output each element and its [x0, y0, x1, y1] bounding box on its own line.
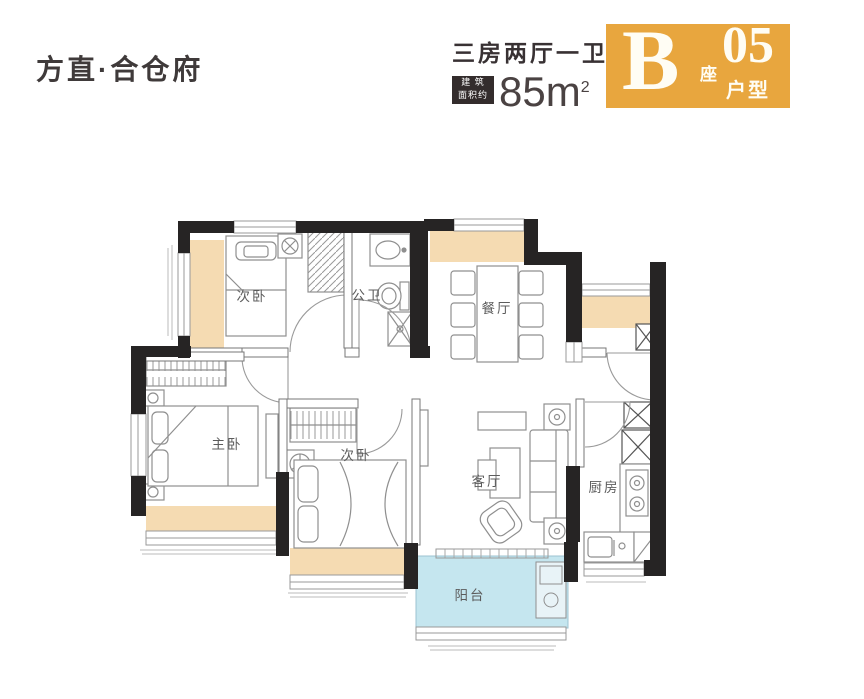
- room-label-bedroom-top: 次卧: [237, 289, 268, 304]
- door-master-bedroom: [242, 357, 288, 403]
- room-label-living: 客厅: [472, 473, 503, 489]
- floorplan-drawing: 次卧 公卫 餐厅 主卧 次卧 客厅 厨房 阳台: [0, 0, 864, 699]
- wardrobe: [308, 226, 344, 292]
- shaft-icon: [622, 430, 654, 464]
- room-label-dining: 餐厅: [482, 301, 513, 316]
- floorplan-page: 方直·合仓府 三房两厅一卫 建 筑 面积约 85m2 B 座 05 户型: [0, 0, 864, 699]
- master-bedroom-furniture: [142, 354, 278, 500]
- speaker-icon: [544, 404, 570, 430]
- stove-icon: [626, 470, 648, 516]
- bedroom-bottom-furniture: [286, 408, 406, 548]
- room-label-master-bedroom: 主卧: [212, 437, 243, 452]
- room-label-bedroom-bottom: 次卧: [341, 448, 372, 463]
- kitchen-furniture: [584, 324, 656, 562]
- room-label-bathroom: 公卫: [352, 288, 383, 303]
- door-entry: [607, 353, 655, 400]
- sideboard: [478, 412, 526, 430]
- tv-cabinet: [266, 414, 278, 478]
- shower-icon: [388, 312, 412, 346]
- sliding-door-threshold: [436, 549, 548, 558]
- washing-machine: [536, 562, 566, 618]
- bedroom-top-furniture: [226, 226, 344, 336]
- room-label-kitchen: 厨房: [589, 480, 620, 495]
- room-label-balcony: 阳台: [455, 588, 486, 603]
- balcony-area: [416, 549, 568, 628]
- sofa: [530, 430, 568, 522]
- door-bedroom-top: [290, 295, 347, 352]
- kitchen-sink: [584, 532, 634, 562]
- ceiling-lamp-icon: [278, 234, 302, 258]
- armchair: [477, 498, 525, 547]
